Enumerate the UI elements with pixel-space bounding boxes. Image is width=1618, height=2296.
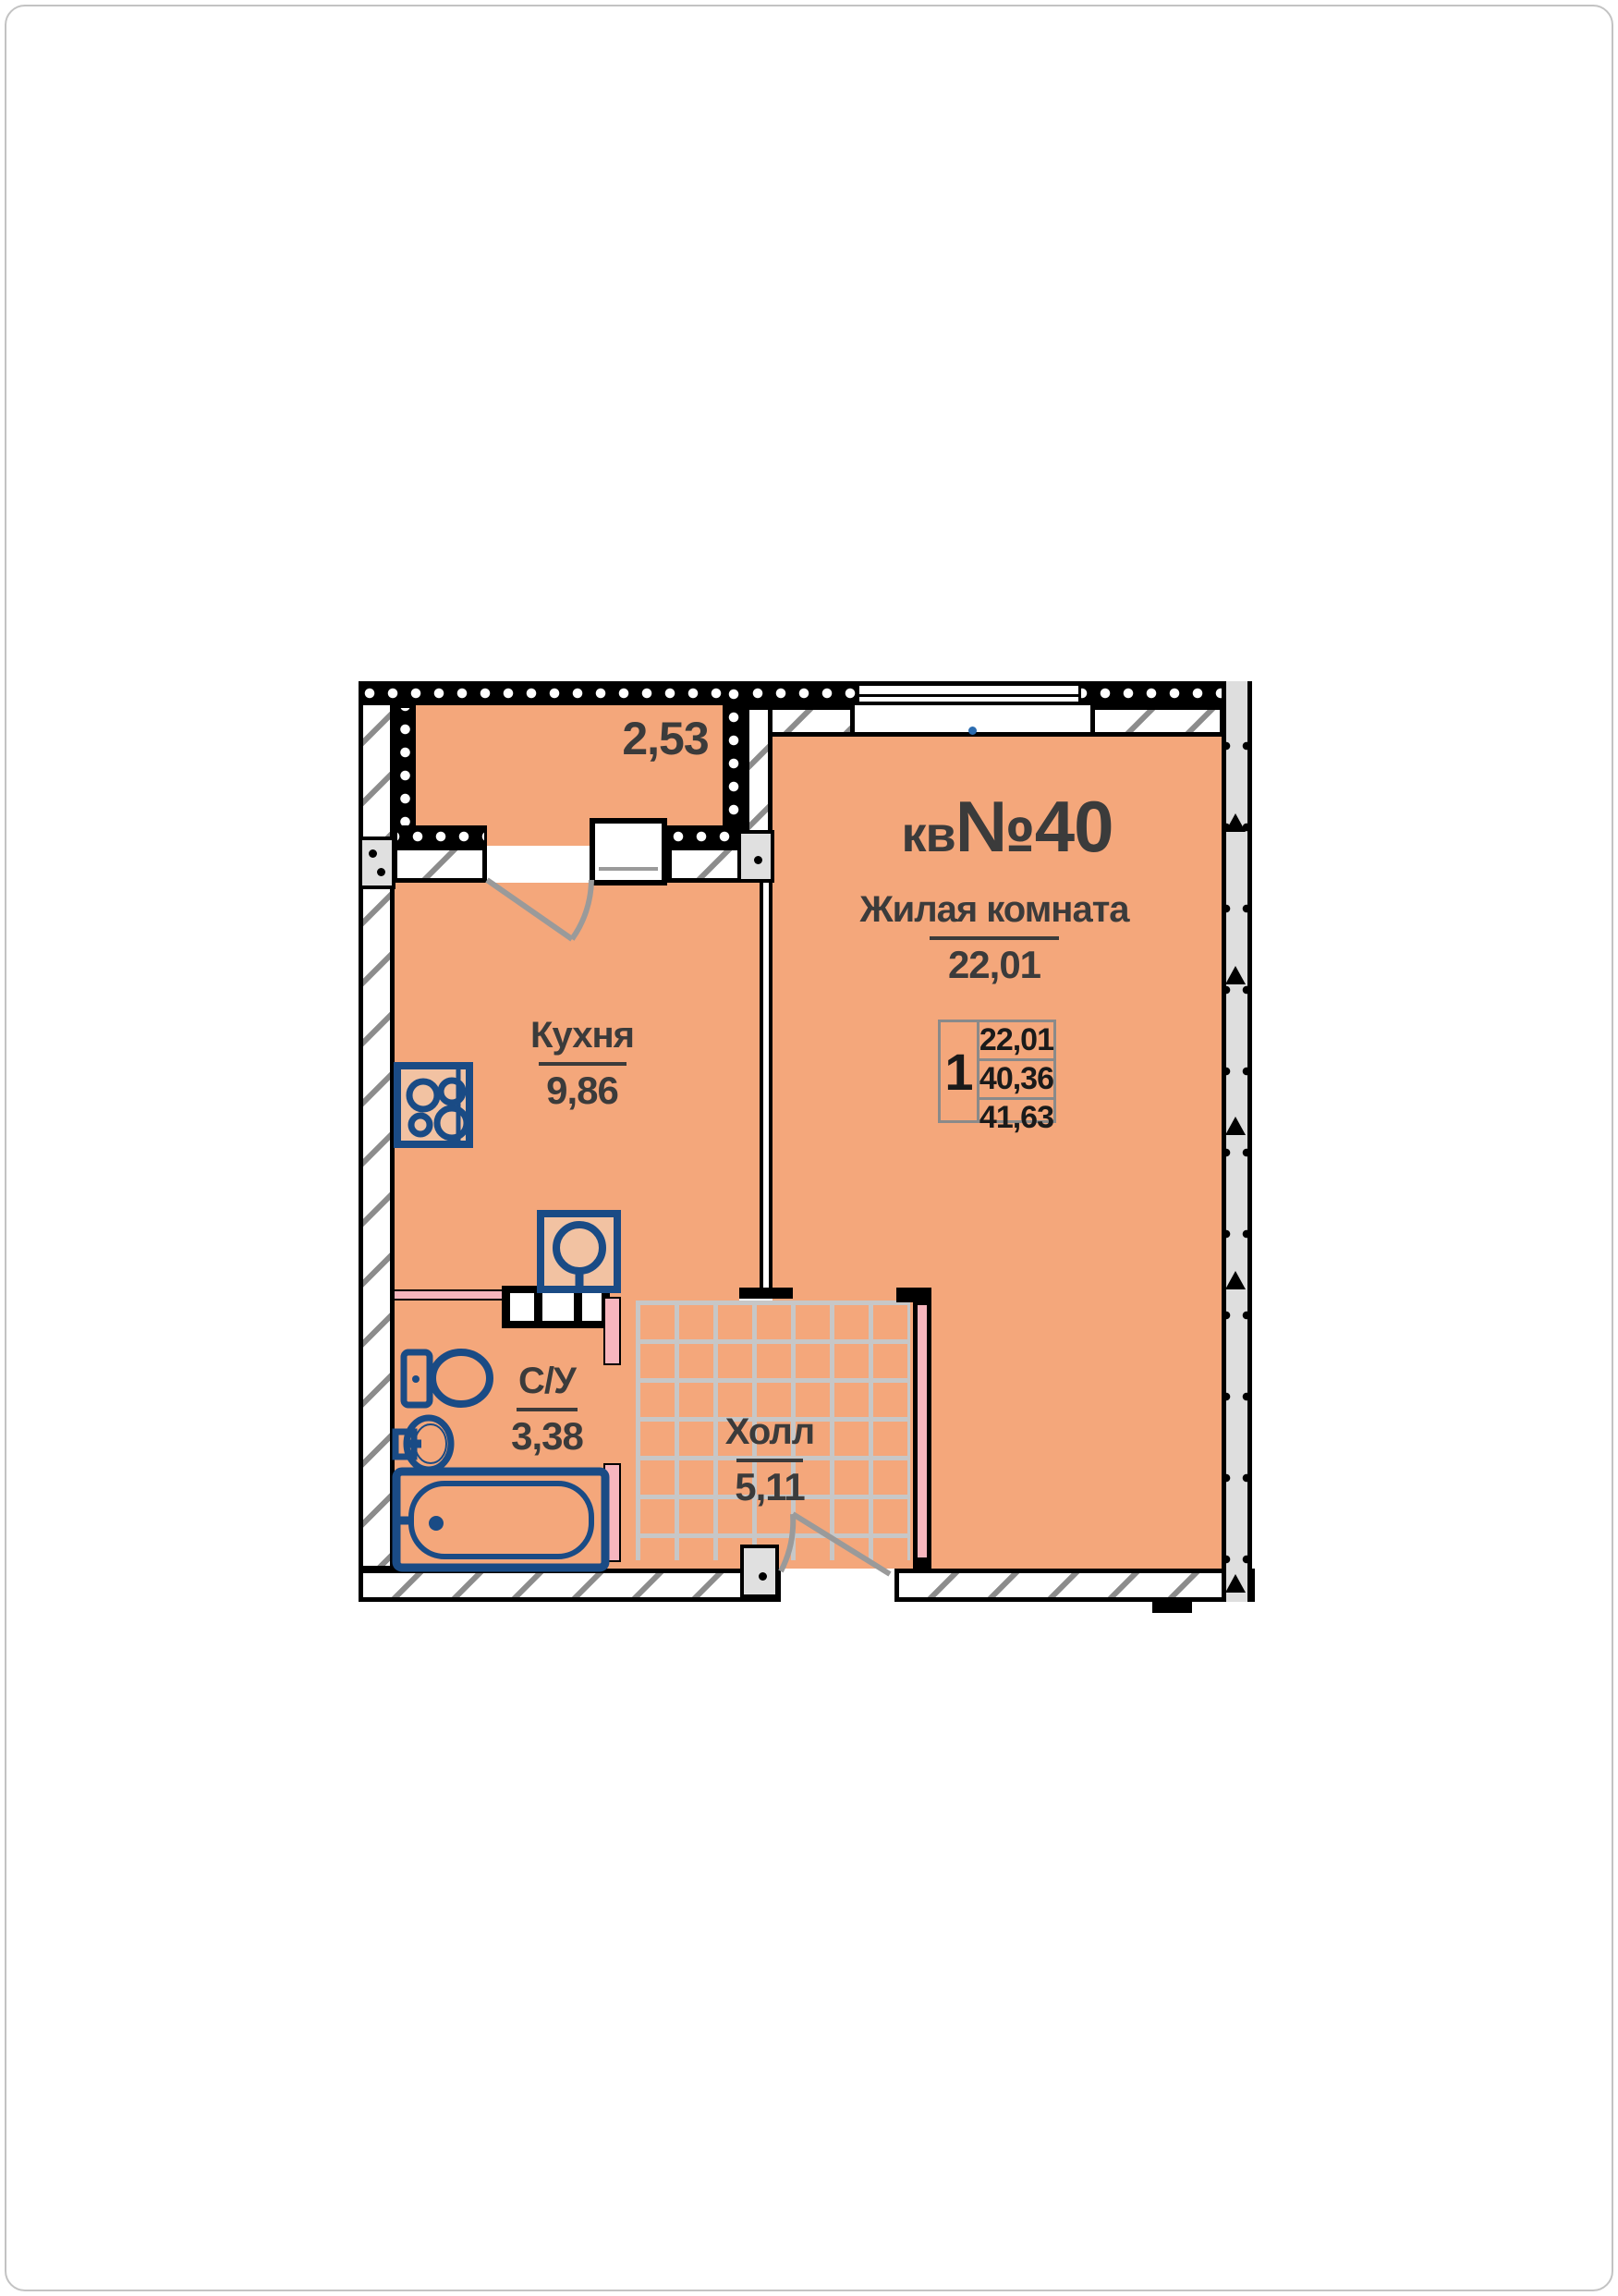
living-room-name: Жилая комната bbox=[859, 889, 1128, 930]
bathroom-label: С/У 3,38 bbox=[455, 1361, 639, 1458]
window-axis-dot bbox=[968, 727, 977, 735]
bathroom-name: С/У bbox=[518, 1361, 576, 1401]
info-living-area: 22,01 bbox=[979, 1022, 1053, 1061]
balcony-living-wall bbox=[745, 705, 773, 849]
window-sill bbox=[599, 867, 658, 871]
apartment-title-prefix: кв bbox=[902, 807, 955, 862]
bottom-wall-notch bbox=[1152, 1600, 1192, 1613]
balcony-door-floor bbox=[487, 825, 590, 846]
bottom-wall-left bbox=[359, 1569, 781, 1602]
hall-area: 5,11 bbox=[735, 1466, 804, 1508]
panel-joint-marker-icon bbox=[1225, 1271, 1246, 1289]
living-top-window-band bbox=[859, 681, 1078, 705]
label-divider bbox=[736, 1459, 803, 1462]
panel-joint-marker-icon bbox=[1225, 813, 1246, 832]
apartment-info-table: 1 22,01 40,36 41,63 bbox=[938, 1020, 1056, 1123]
balcony-inner-wall-right bbox=[723, 681, 745, 846]
kitchen-name: Кухня bbox=[530, 1015, 634, 1056]
living-top-wall-right bbox=[1090, 705, 1224, 737]
living-top-railing-left bbox=[748, 681, 859, 705]
kitchen-window bbox=[590, 818, 667, 885]
label-divider bbox=[517, 1408, 578, 1411]
balcony-bottom-wall-right bbox=[658, 825, 745, 848]
info-area-no-balcony: 40,36 bbox=[979, 1061, 1053, 1100]
vent-shaft bbox=[502, 1286, 610, 1328]
info-total-area: 41,63 bbox=[979, 1100, 1053, 1136]
apartment-title: кв№40 bbox=[878, 790, 1137, 862]
kitchen-living-partition bbox=[760, 883, 773, 1288]
wall-junction-block-kitchen bbox=[737, 830, 774, 883]
kitchen-label: Кухня 9,86 bbox=[444, 1015, 721, 1112]
panel-joint-marker-icon bbox=[1225, 1117, 1246, 1135]
balcony-area-label: 2,53 bbox=[610, 712, 721, 765]
vent-shaft-inner bbox=[510, 1293, 602, 1321]
living-top-railing-right bbox=[1078, 681, 1224, 705]
bathroom-top-partition bbox=[393, 1289, 504, 1301]
bathroom-side-partition-lower bbox=[603, 1463, 621, 1562]
bathroom-side-partition-upper bbox=[603, 1297, 621, 1365]
balcony-top-railing-wall bbox=[360, 681, 748, 705]
entrance-door-jamb bbox=[740, 1545, 779, 1598]
wall-junction-block-left bbox=[359, 837, 395, 889]
balcony-bottom-wall-left bbox=[395, 825, 487, 848]
label-divider bbox=[539, 1062, 627, 1066]
apartment-number: №40 bbox=[955, 786, 1113, 867]
living-room-area: 22,01 bbox=[948, 944, 1040, 986]
balcony-door-opening bbox=[487, 848, 590, 883]
label-divider bbox=[930, 936, 1059, 940]
entrance-opening bbox=[781, 1569, 894, 1602]
hall-label: Холл 5,11 bbox=[677, 1411, 862, 1508]
left-outer-wall bbox=[359, 681, 395, 1570]
living-room-label: Жилая комната 22,01 bbox=[856, 889, 1133, 986]
hall-living-wall-stub bbox=[896, 1288, 915, 1302]
info-rooms-count: 1 bbox=[941, 1022, 979, 1120]
hall-name: Холл bbox=[725, 1411, 814, 1452]
bottom-wall-right bbox=[894, 1569, 1255, 1602]
kitchen-living-partition-foot bbox=[739, 1288, 793, 1299]
panel-joint-marker-icon bbox=[1225, 966, 1246, 984]
kitchen-area: 9,86 bbox=[546, 1069, 618, 1112]
kitchen-top-wall-left bbox=[393, 846, 487, 883]
panel-joint-marker-icon bbox=[1225, 1574, 1246, 1593]
hall-living-wall-core bbox=[918, 1305, 927, 1557]
bathroom-area: 3,38 bbox=[511, 1415, 583, 1458]
